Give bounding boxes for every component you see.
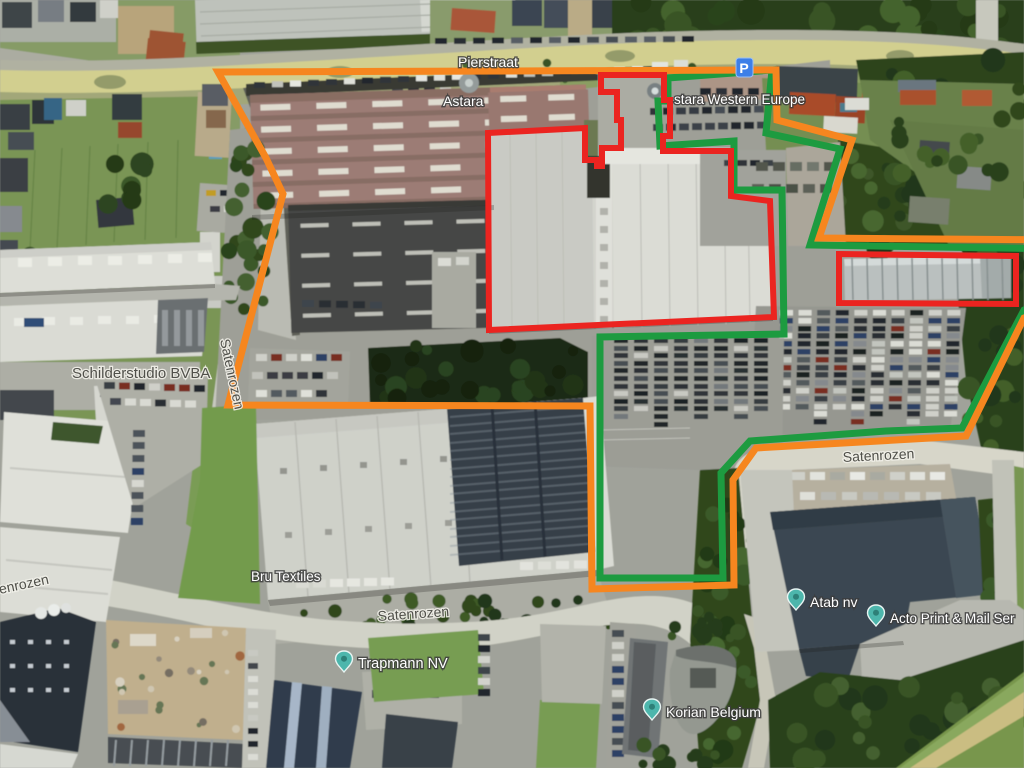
svg-text:stara Western Europe: stara Western Europe — [674, 92, 805, 107]
svg-text:Korian Belgium: Korian Belgium — [666, 704, 761, 720]
svg-text:P: P — [739, 60, 748, 76]
svg-text:Pierstraat: Pierstraat — [458, 54, 518, 70]
svg-text:Trapmann NV: Trapmann NV — [358, 656, 448, 672]
svg-text:Acto Print & Mail Ser: Acto Print & Mail Ser — [890, 611, 1015, 626]
svg-text:Schilderstudio BVBA: Schilderstudio BVBA — [72, 365, 210, 382]
svg-text:Atab nv: Atab nv — [810, 594, 857, 610]
svg-text:Bru Textiles: Bru Textiles — [251, 569, 321, 584]
svg-text:Astara: Astara — [443, 93, 484, 109]
